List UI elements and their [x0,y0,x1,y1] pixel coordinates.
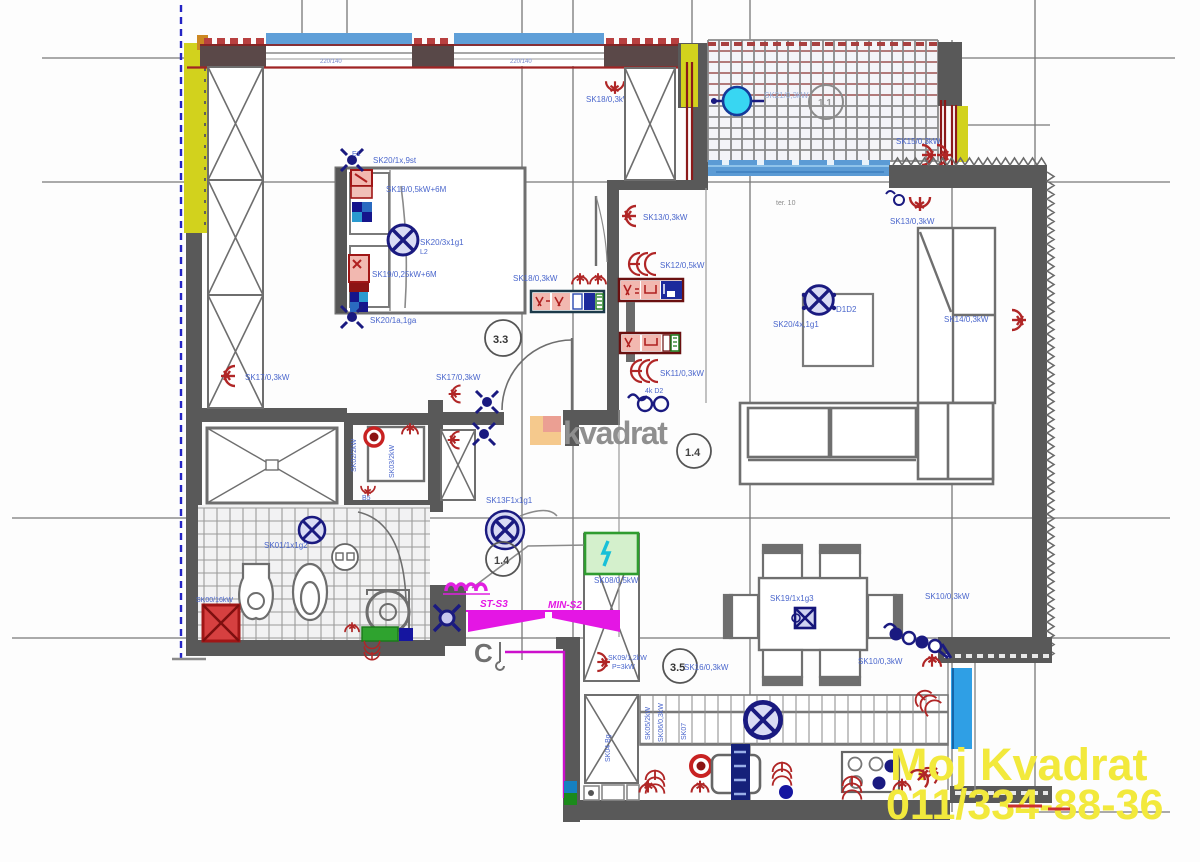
svg-text:4k D2: 4k D2 [645,388,663,395]
svg-text:SK09/1,2kW: SK09/1,2kW [608,655,647,662]
svg-text:SK04 Bg: SK04 Bg [605,734,612,762]
svg-text:ST-S3: ST-S3 [480,599,508,610]
svg-text:P=3kW: P=3kW [612,664,635,671]
svg-text:SK20/1a,1ga: SK20/1a,1ga [370,316,417,325]
svg-text:SK02/2kW: SK02/2kW [351,439,358,472]
svg-text:SK15/0,3kW: SK15/0,3kW [896,137,941,146]
svg-text:MIN-S2: MIN-S2 [548,600,582,611]
svg-text:SK00/16kW: SK00/16kW [196,597,233,604]
svg-text:220/140: 220/140 [510,59,532,65]
svg-text:SK17/0,3kW: SK17/0,3kW [436,373,481,382]
svg-text:B5: B5 [362,495,371,502]
svg-text:SK12/0,5kW: SK12/0,5kW [660,261,705,270]
svg-text:SK05/2kW: SK05/2kW [645,707,652,740]
svg-text:SK14/0,3kW: SK14/0,3kW [944,315,989,324]
svg-text:SK19/0,25kW+6M: SK19/0,25kW+6M [372,270,437,279]
svg-text:3.3: 3.3 [493,334,508,346]
svg-text:SK10/0,3kW: SK10/0,3kW [858,657,903,666]
svg-text:1.4: 1.4 [494,555,510,567]
svg-text:3.5: 3.5 [670,662,685,674]
svg-text:SK03/2kW: SK03/2kW [389,445,396,478]
svg-text:SK21/0,3kW: SK21/0,3kW [764,91,809,100]
svg-text:1.4: 1.4 [685,447,701,459]
svg-text:1.1: 1.1 [818,98,832,109]
svg-text:E1: E1 [352,151,361,158]
svg-text:L2: L2 [420,249,428,256]
svg-text:ter. 10: ter. 10 [776,200,796,207]
svg-text:SK11/0,3kW: SK11/0,3kW [660,369,704,378]
svg-text:SK19/1x1g3: SK19/1x1g3 [770,594,814,603]
svg-text:SK18/0,3kW: SK18/0,3kW [513,274,558,283]
svg-text:SK20/4x,1g1: SK20/4x,1g1 [773,320,819,329]
svg-text:SK17/0,3kW: SK17/0,3kW [245,373,290,382]
svg-text:D1D2: D1D2 [836,305,857,314]
svg-text:SK20/1x,9st: SK20/1x,9st [373,156,417,165]
svg-text:C: C [474,638,493,668]
svg-text:SK13/0,3kW: SK13/0,3kW [890,217,935,226]
svg-text:SK13F1x1g1: SK13F1x1g1 [486,496,533,505]
svg-text:SK16/0,3kW: SK16/0,3kW [684,663,729,672]
svg-text:SK18/0,5kW+6M: SK18/0,5kW+6M [386,185,447,194]
svg-text:kvadrat: kvadrat [563,415,668,451]
svg-text:SK10/0,3kW: SK10/0,3kW [925,592,970,601]
svg-text:SK20/3x1g1: SK20/3x1g1 [420,238,464,247]
svg-text:SK06/0,3kW: SK06/0,3kW [658,703,665,742]
svg-text:SK13/0,3kW: SK13/0,3kW [643,213,688,222]
svg-text:SK08/0,5kW: SK08/0,5kW [594,576,639,585]
svg-text:SK01/1x1g2: SK01/1x1g2 [264,541,308,550]
svg-text:220/140: 220/140 [320,59,342,65]
svg-text:SK07: SK07 [681,723,688,740]
